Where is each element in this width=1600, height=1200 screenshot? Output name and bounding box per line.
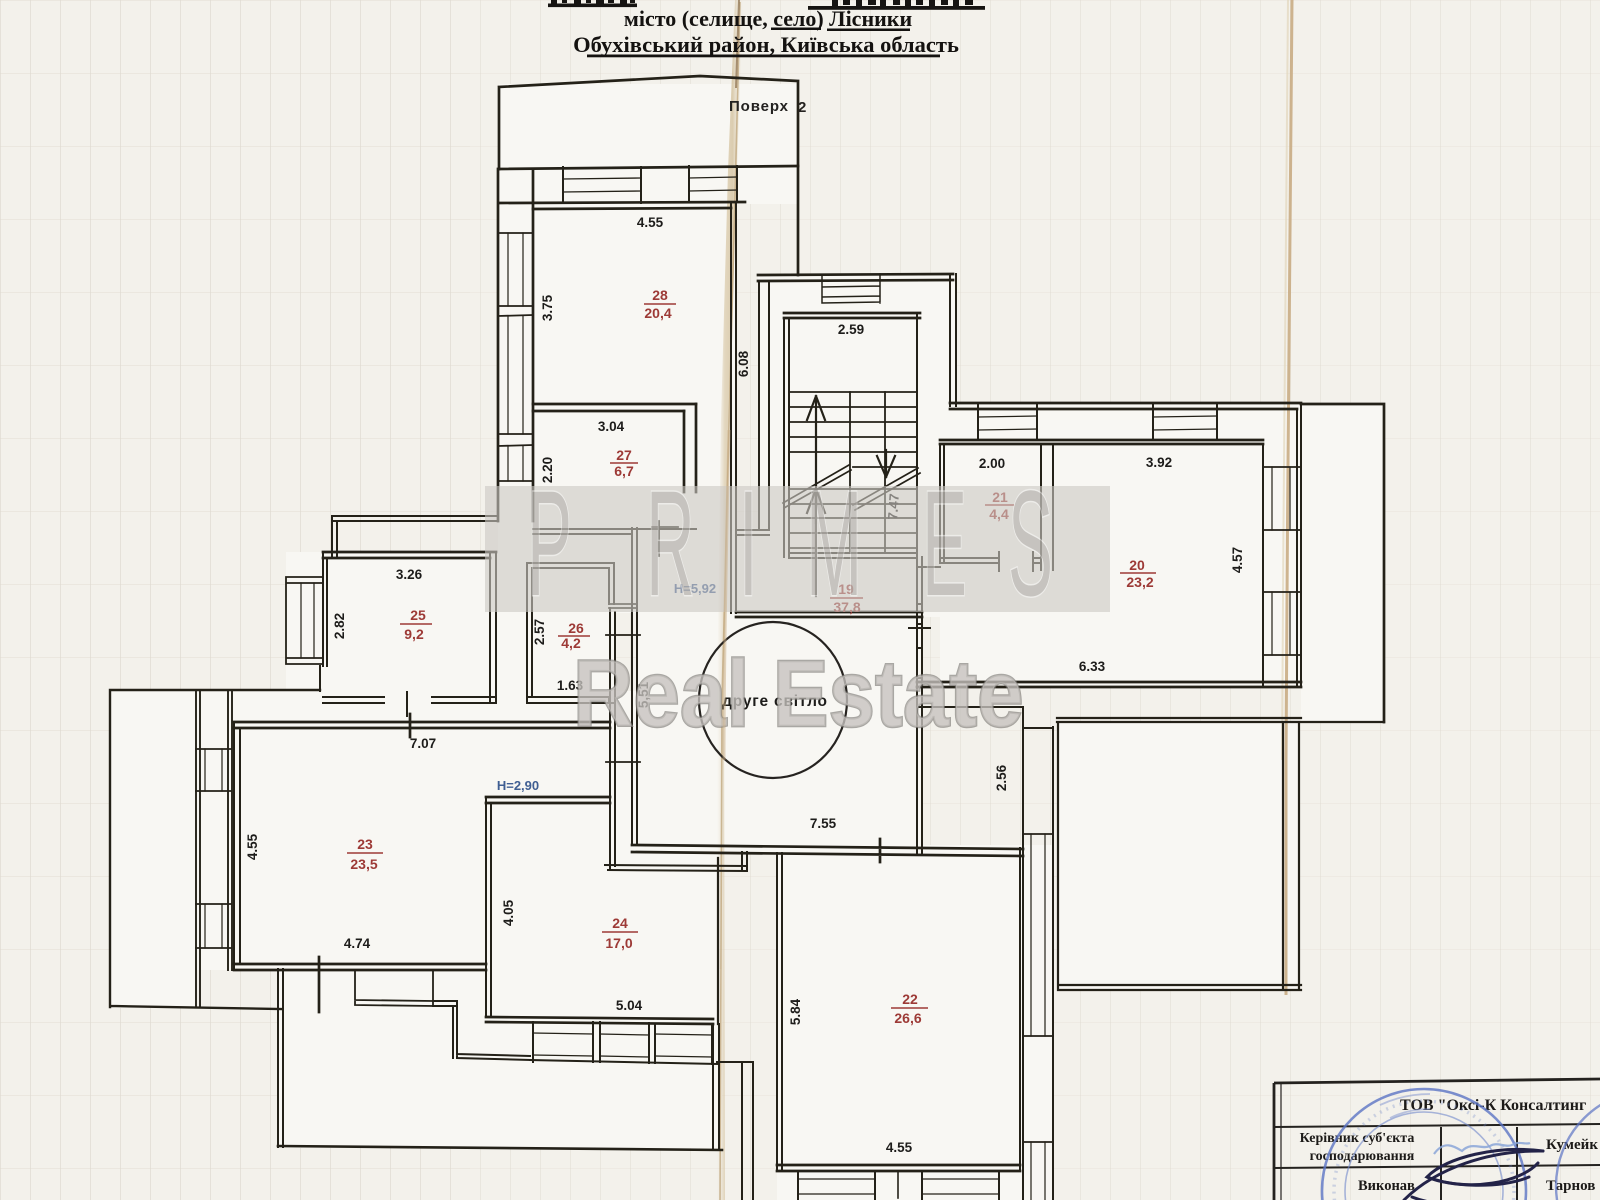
svg-text:25: 25 (410, 607, 426, 623)
svg-text:22: 22 (902, 991, 918, 1007)
svg-text:27: 27 (616, 447, 632, 463)
svg-text:6,7: 6,7 (614, 463, 634, 479)
svg-text:4.55: 4.55 (245, 833, 260, 860)
svg-text:4.74: 4.74 (344, 936, 371, 951)
svg-text:S: S (1008, 460, 1053, 628)
svg-text:2.00: 2.00 (979, 456, 1005, 471)
svg-text:M: M (806, 460, 862, 628)
svg-text:2: 2 (798, 99, 806, 116)
svg-text:23: 23 (357, 836, 373, 852)
svg-text:5.04: 5.04 (616, 998, 643, 1013)
svg-text:6.08: 6.08 (736, 350, 751, 377)
svg-text:місто (селище, село) Лісники: місто (селище, село) Лісники (624, 6, 913, 31)
svg-text:24: 24 (612, 915, 628, 931)
svg-text:20,4: 20,4 (644, 305, 671, 321)
svg-text:Кумейк: Кумейк (1546, 1137, 1598, 1153)
svg-text:R: R (646, 460, 695, 628)
svg-text:2.56: 2.56 (994, 764, 1009, 791)
svg-text:E: E (922, 460, 967, 628)
svg-text:Тарнов: Тарнов (1546, 1178, 1595, 1194)
svg-text:3.26: 3.26 (396, 567, 423, 582)
svg-text:P: P (527, 460, 572, 628)
svg-text:Обухівський район, Київська об: Обухівський район, Київська область (573, 32, 959, 57)
svg-text:3.92: 3.92 (1146, 455, 1172, 470)
svg-text:5.84: 5.84 (788, 998, 803, 1025)
svg-text:Керівник суб'єкта: Керівник суб'єкта (1300, 1131, 1415, 1146)
svg-text:23,2: 23,2 (1126, 574, 1153, 590)
svg-text:3.04: 3.04 (598, 419, 625, 434)
svg-text:26,6: 26,6 (894, 1010, 921, 1026)
svg-text:4.57: 4.57 (1230, 547, 1245, 573)
svg-text:23,5: 23,5 (350, 856, 377, 872)
svg-text:4.05: 4.05 (501, 899, 516, 926)
svg-text:Поверх: Поверх (729, 98, 789, 115)
svg-text:6.33: 6.33 (1079, 659, 1106, 674)
svg-text:7.07: 7.07 (410, 736, 436, 751)
svg-text:28: 28 (652, 287, 668, 303)
svg-text:20: 20 (1129, 557, 1145, 573)
svg-text:H=2,90: H=2,90 (497, 778, 539, 793)
svg-text:17,0: 17,0 (605, 935, 632, 951)
svg-text:I: I (739, 460, 758, 628)
svg-text:2.59: 2.59 (838, 322, 864, 337)
svg-text:7.55: 7.55 (810, 816, 837, 831)
svg-text:4.55: 4.55 (637, 215, 664, 230)
svg-text:9,2: 9,2 (404, 626, 424, 642)
svg-text:3.75: 3.75 (540, 294, 555, 321)
svg-text:Real Estate: Real Estate (573, 640, 1024, 746)
svg-text:2.82: 2.82 (332, 613, 347, 639)
svg-text:Виконав: Виконав (1358, 1178, 1415, 1194)
svg-text:4.55: 4.55 (886, 1140, 913, 1155)
